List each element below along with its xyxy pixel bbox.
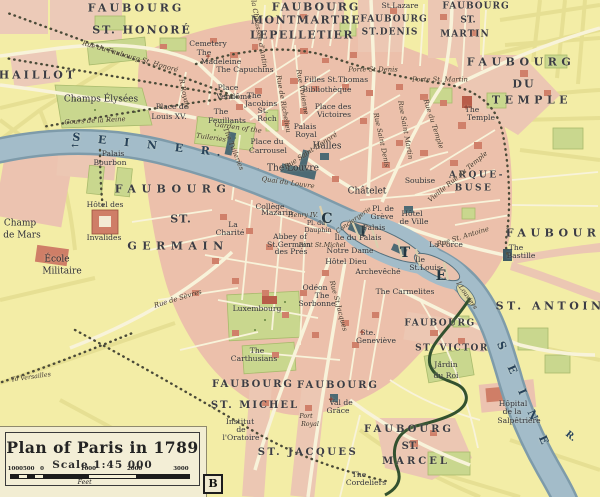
map-label: Royal	[301, 422, 319, 428]
map-label: ST.DENIS	[362, 29, 419, 38]
map-label: ST.	[460, 17, 475, 26]
map-label: GERMAIN	[127, 241, 228, 252]
map-label: Champ	[4, 220, 36, 229]
map-label: Jardin	[434, 361, 457, 369]
map-label: FAUBOURG	[212, 380, 294, 390]
scale-bar-number: 2000	[127, 466, 142, 472]
map-label: ST.	[170, 214, 192, 225]
map-label: FAUBOURG	[442, 3, 509, 12]
map-label: de Mars	[3, 232, 40, 241]
map-label: Carthusians	[231, 355, 277, 363]
map-label: Carrousel	[249, 147, 287, 155]
map-label: de la	[503, 408, 522, 416]
legend-plate: Plan of Paris in 1789 Scale 1:45 000 100…	[0, 426, 207, 497]
map-label: Hôtel Dieu	[325, 258, 366, 266]
map-title: Plan of Paris in 1789	[6, 438, 199, 457]
map-label: ST. VICTOR	[415, 345, 489, 354]
map-label: Soubise	[405, 177, 435, 185]
map-label: Hôtel des	[87, 201, 124, 209]
map-label: CHAILLOT	[0, 70, 77, 81]
map-label: Militaire	[42, 268, 81, 277]
map-label: ST. JACQUES	[258, 448, 359, 458]
map-label: Temple	[467, 114, 495, 122]
map-label: Porte St. Martin	[412, 77, 468, 84]
map-label: Bibliothèque	[303, 86, 352, 94]
map-label: Roch	[257, 115, 276, 123]
map-label: FAUBOURG	[88, 3, 185, 14]
map-label: ST. MICHEL	[211, 401, 299, 411]
map-label: Victoires	[317, 111, 351, 119]
map-label: MARCEL	[382, 457, 450, 467]
map-label: de Ville	[400, 218, 429, 226]
map-label: des Prés	[275, 248, 308, 256]
map-label: FAUBOURG	[297, 381, 379, 391]
map-label: FAUBOURG	[364, 425, 454, 435]
map-label: Place	[218, 84, 239, 92]
map-label: TEMPLE	[492, 95, 572, 106]
map-label: LEPELLETIER	[250, 30, 354, 41]
map-label: Cordeliers	[346, 479, 386, 487]
map-label: Bourbon	[94, 159, 127, 167]
map-label: The Carmelites	[376, 288, 435, 296]
map-label: ST. ANTOINE	[496, 301, 600, 312]
map-label: Bastille	[507, 252, 536, 260]
plate-letter: B	[203, 474, 223, 494]
map-label: du Roi	[434, 372, 459, 380]
map-label: FAUBOURG	[404, 320, 475, 329]
map-label: DU	[512, 79, 535, 90]
map-label: +	[463, 104, 469, 111]
map-label: Filles St.Thomas	[304, 76, 368, 84]
map-label: +	[359, 329, 365, 336]
map-label: FAUBOURG	[506, 228, 600, 239]
map-label: Louis XV.	[151, 113, 186, 121]
map-label: Cemetery	[189, 40, 226, 48]
map-label: Invalides	[87, 234, 122, 242]
map-label: ST.	[402, 442, 419, 452]
map-label: ←	[71, 143, 79, 152]
map-label: FAUBOURG	[467, 57, 576, 68]
scale-bar-numbers: 10005000100020003000	[10, 466, 188, 473]
map-label: Sorbonne	[298, 300, 335, 308]
map-label: Palais	[102, 150, 125, 158]
map-label: Île du Palais	[334, 234, 381, 242]
map-label: Royal	[295, 131, 317, 139]
map-label: Charité	[216, 229, 245, 237]
map-label: Porte St.Denis	[348, 67, 398, 74]
paris-map: Plan of Paris in 1789 Scale 1:45 000 100…	[0, 0, 600, 497]
scale-bar-number: 500	[23, 466, 34, 472]
scale-bar-number: 1000	[81, 466, 96, 472]
map-label: MARTIN	[440, 31, 489, 40]
map-label: Luxembourg	[233, 305, 282, 313]
scale-bar-number: 3000	[173, 466, 188, 472]
map-label: Palais	[363, 224, 386, 232]
map-label: Dauphin	[304, 228, 331, 234]
scale-bar-number: 1000	[8, 466, 23, 472]
map-label: St.Louis	[409, 264, 441, 272]
map-label: FAUBOURG	[272, 2, 361, 13]
map-label: Châtelet	[348, 188, 387, 197]
map-label: +	[205, 53, 211, 60]
map-label: St.Lazare	[382, 2, 419, 10]
map-label: FAUBOURG	[115, 184, 232, 195]
map-label: The	[214, 108, 228, 116]
map-label: T	[400, 246, 410, 260]
map-label: Grâce	[327, 407, 350, 415]
map-label: Archevêché	[355, 268, 400, 276]
map-label: FAUBOURG	[360, 16, 427, 25]
scale-bar-graphic	[10, 474, 190, 479]
map-label: BUSE	[455, 185, 494, 194]
map-label: Grève	[371, 213, 394, 221]
map-label: École	[44, 256, 69, 265]
map-label: MONTMARTRE	[251, 15, 361, 26]
map-label: Geneviève	[356, 337, 396, 345]
map-label: Port	[299, 414, 312, 420]
map-label: Champs Élysées	[64, 96, 138, 105]
scale-bar-number: 0	[40, 466, 44, 472]
map-label: +	[328, 396, 334, 403]
map-label: Mazarin	[261, 209, 293, 217]
map-label: l'Oratoire	[222, 434, 259, 442]
map-label: Place du	[251, 138, 284, 146]
scale-unit: Feet	[78, 479, 92, 486]
map-label: ST. HONORÉ	[92, 25, 192, 36]
scale-bar: 10005000100020003000 Feet	[10, 473, 188, 483]
